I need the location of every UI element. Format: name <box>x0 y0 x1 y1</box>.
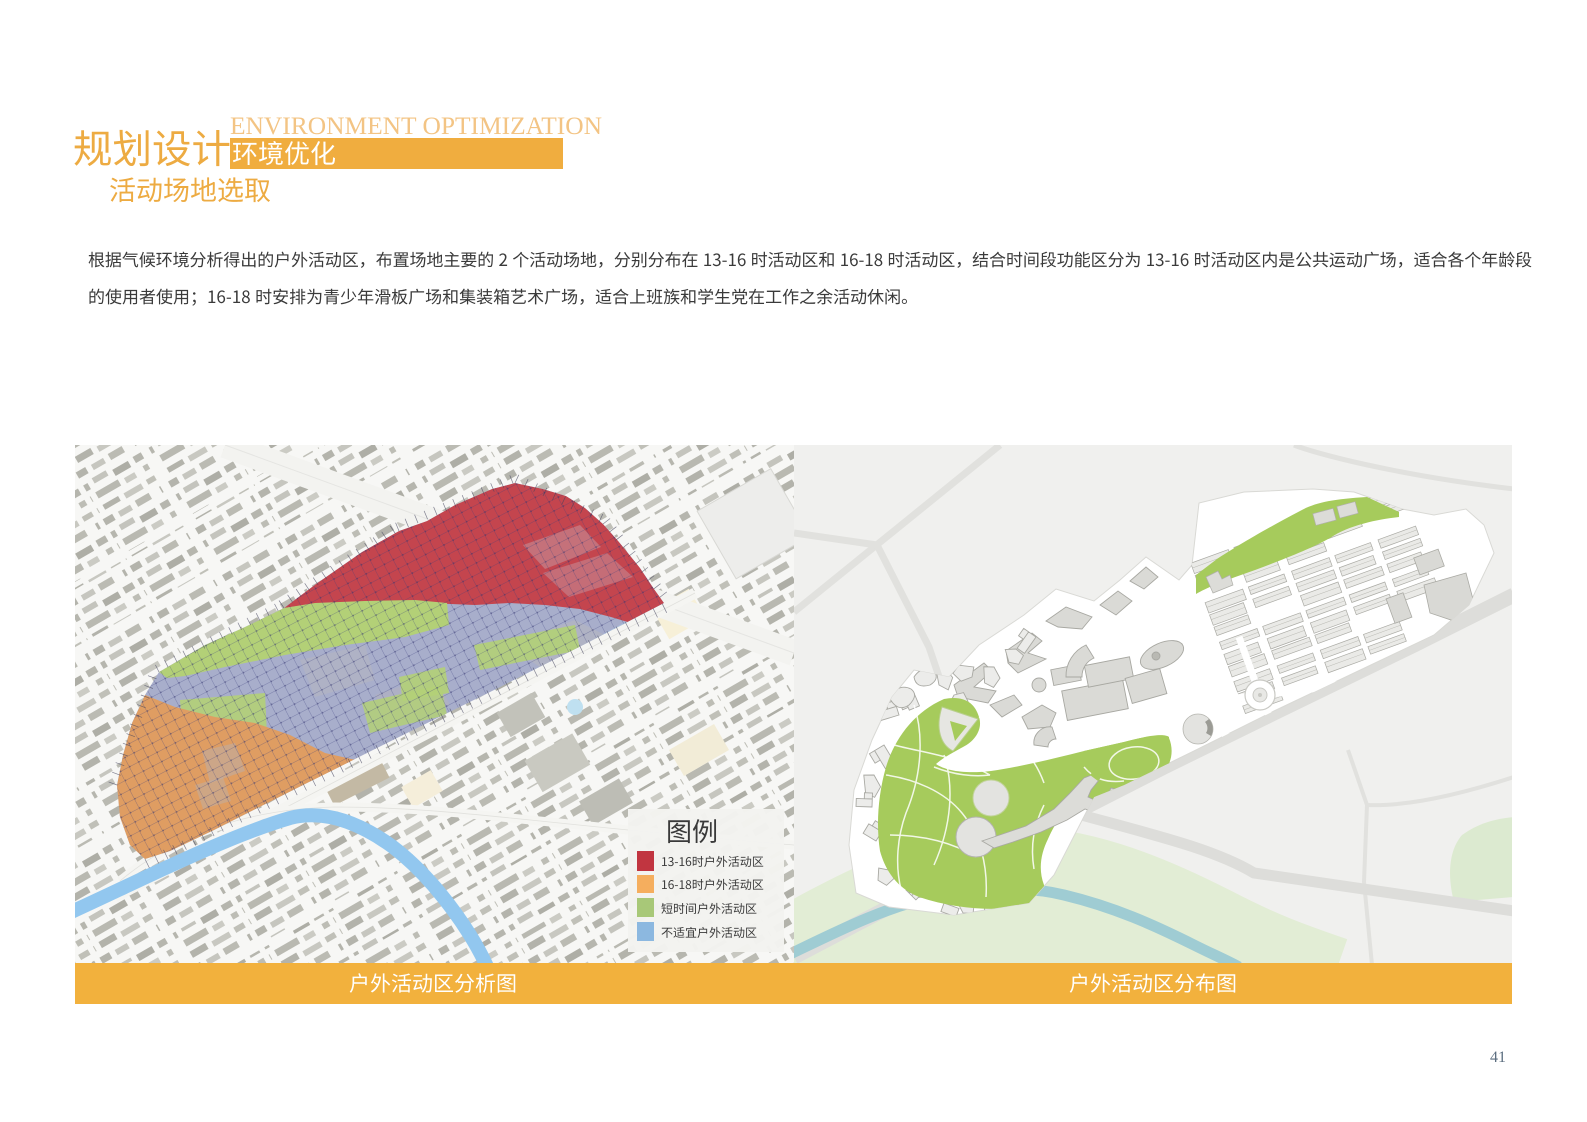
svg-text:ENVIRONMENT OPTIMIZATION: ENVIRONMENT OPTIMIZATION <box>230 111 602 140</box>
svg-text:41: 41 <box>1490 1049 1506 1066</box>
